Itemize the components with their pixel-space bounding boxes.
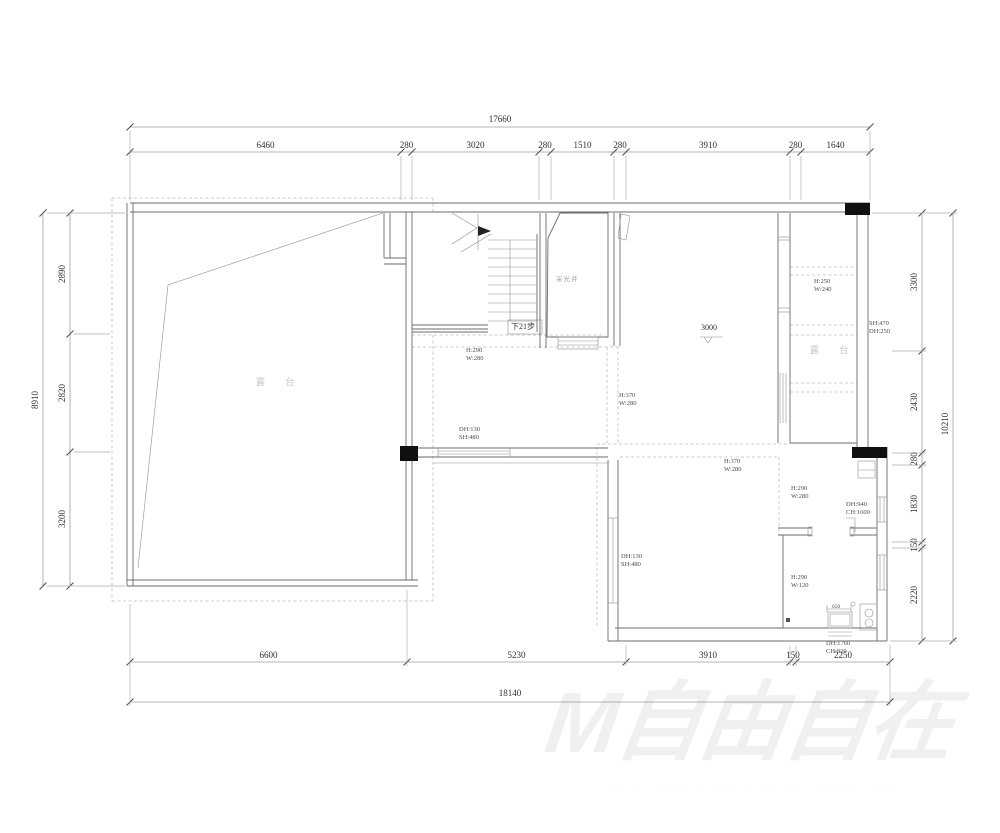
dimension-label: 3910 (699, 140, 717, 150)
room-label: 露 台 (810, 343, 857, 356)
floor-drain-icon (786, 618, 790, 622)
dimension-label: 2890 (57, 265, 67, 283)
dimension-label: 3020 (467, 140, 485, 150)
column (845, 203, 870, 215)
room-label: 露 台 (256, 375, 303, 388)
dimension-label: 150 (909, 538, 919, 552)
annotation-label: 3000 (701, 323, 717, 332)
annotation-label: DH:130 SH:480 (621, 553, 642, 569)
annotation-label: 下21步 (511, 321, 535, 332)
dimension-label: 2820 (57, 384, 67, 402)
column (400, 446, 418, 461)
annotation-label: H:290 W:280 (791, 485, 808, 501)
annotation-label: 650 (832, 604, 840, 610)
dimension-label: 6460 (257, 140, 275, 150)
dimension-total-label: 10210 (940, 413, 950, 436)
dimension-label: 3300 (909, 273, 919, 291)
dimension-total-label: 8910 (30, 391, 40, 409)
dimension-label: 280 (789, 140, 803, 150)
dimension-label: 280 (538, 140, 552, 150)
dimensions-layer (40, 124, 958, 707)
dimension-total-label: 17660 (489, 114, 512, 124)
dimension-label: 280 (613, 140, 627, 150)
annotation-label: DH:130 SH:480 (459, 426, 480, 442)
dimension-label: 5230 (508, 650, 526, 660)
dimension-label: 1510 (574, 140, 592, 150)
annotation-label: SH:470 DH:250 (869, 320, 890, 336)
fixtures-layer (700, 337, 877, 636)
walls-layer (127, 203, 887, 641)
dimension-label: 280 (400, 140, 414, 150)
dimension-label: 280 (909, 452, 919, 466)
dashed-layer (112, 198, 857, 628)
annotation-label: H:290 W:120 (791, 574, 808, 590)
vanity (828, 612, 852, 628)
dimension-label: 6600 (260, 650, 278, 660)
annotation-label: H:290 W:280 (466, 347, 483, 363)
dimension-label: 1640 (827, 140, 845, 150)
floor-plan-drawing (0, 0, 1000, 833)
dimension-label: 2430 (909, 393, 919, 411)
annotation-label: DH:1760 CH:820 (826, 640, 850, 656)
dimension-label: 2220 (909, 586, 919, 604)
stair-direction-arrow-icon (478, 226, 491, 236)
dimension-label: 1830 (909, 495, 919, 513)
dimension-label: 3200 (57, 510, 67, 528)
dimension-label: 3910 (699, 650, 717, 660)
dimension-total-label: 18140 (499, 688, 522, 698)
column (852, 447, 887, 458)
floor-plan-canvas: 6460280302028015102803910280164017660660… (0, 0, 1000, 833)
annotation-label: H:370 W:280 (619, 392, 636, 408)
annotation-label: H:370 W:280 (724, 458, 741, 474)
room-label: 采光井 (556, 273, 579, 283)
annotation-label: DH:940 CH:1600 (846, 501, 870, 517)
dimension-label: 150 (786, 650, 800, 660)
annotation-label: H:250 W:240 (814, 278, 831, 294)
